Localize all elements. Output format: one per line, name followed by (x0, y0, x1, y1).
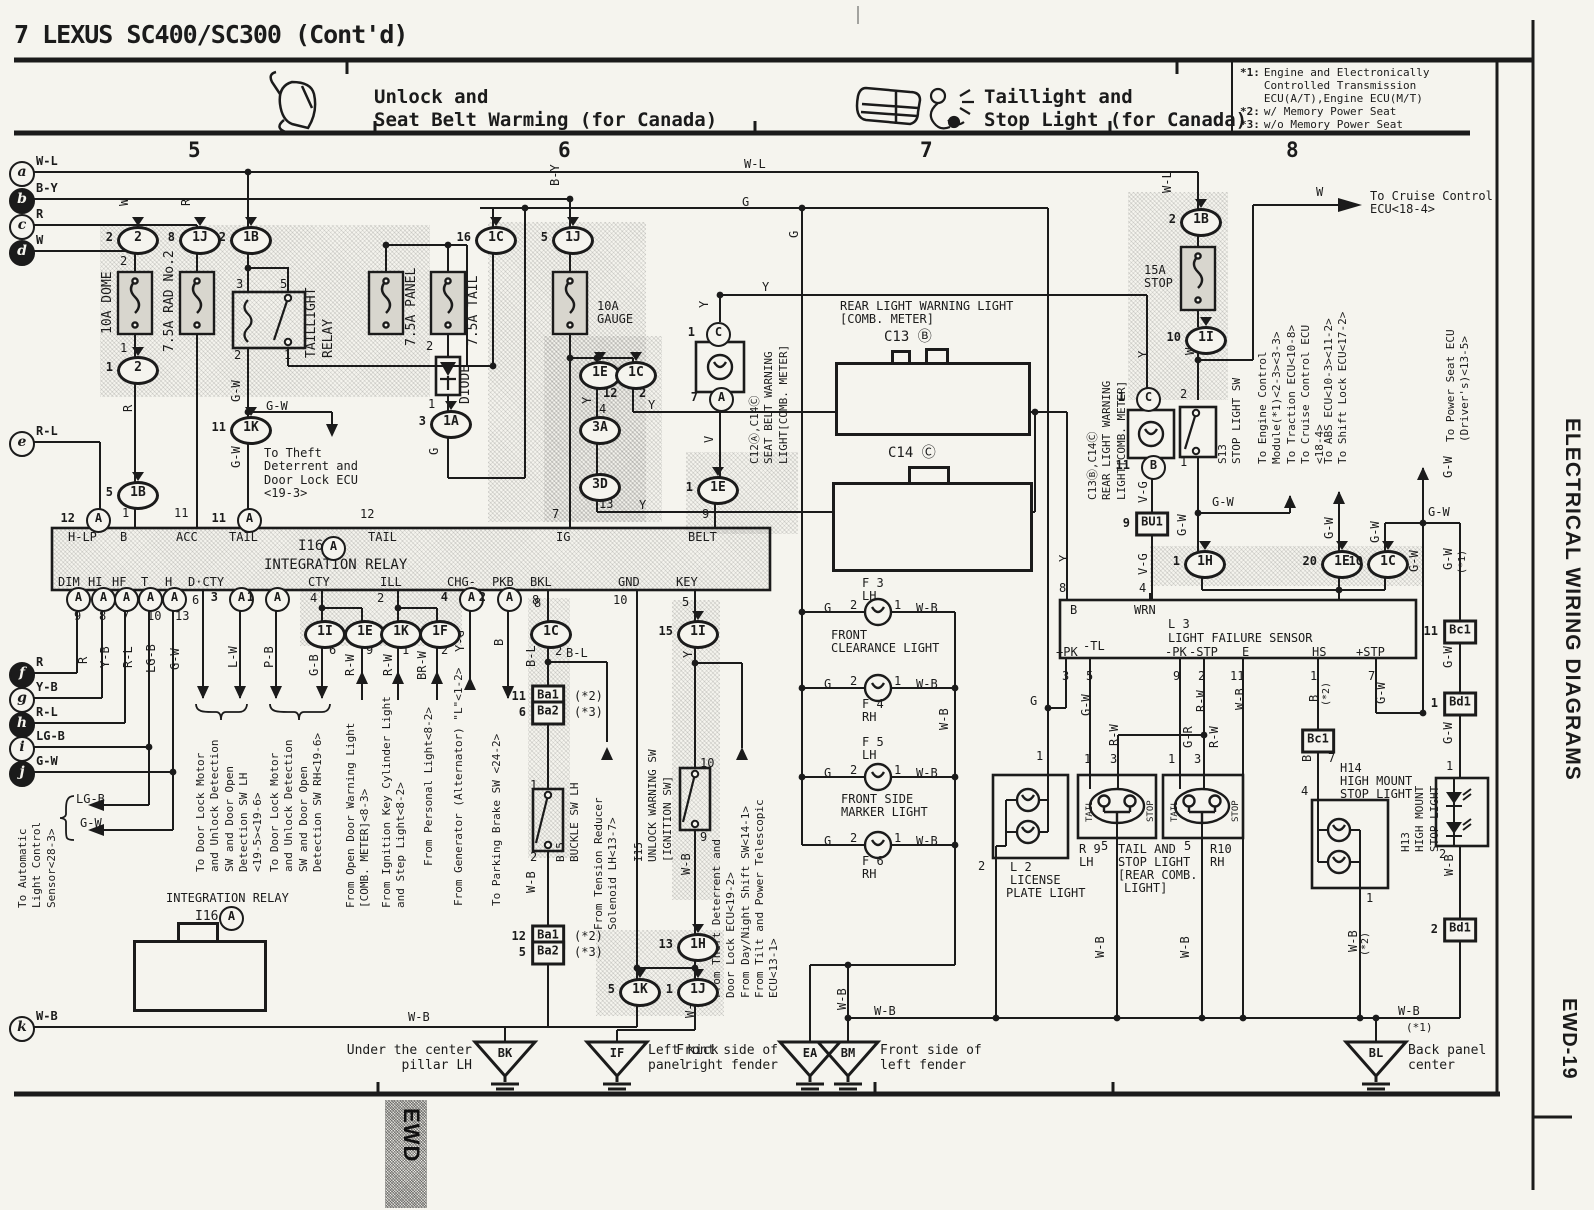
connector-pin: 12 (55, 511, 75, 525)
label-f5s: LH (862, 749, 876, 762)
label-tail_r10: TAIL (1170, 800, 1180, 822)
label-rn3a: 3 (1110, 753, 1117, 766)
label-gw_s: G-W (80, 817, 102, 830)
label-p1f4: 1 (894, 832, 901, 845)
connector-pin: 8 (155, 230, 175, 244)
label-r_c: R (180, 199, 193, 206)
vtext-v21: S13 STOP LIGHT SW (1216, 378, 1245, 464)
label-r9b: LH (1079, 856, 1093, 869)
connector-pin: 12 (603, 386, 617, 400)
label-wb2: W-B (916, 678, 938, 691)
label-y3d: Y (639, 499, 646, 512)
connector-1J: 1J (552, 226, 594, 255)
note-key: *3: (1240, 119, 1260, 132)
label-wyb: Y-B (99, 646, 112, 668)
row-wire-label-g: Y-B (36, 681, 58, 694)
connector-pin: 1 (1160, 554, 1180, 568)
connector-pin: 1 (234, 590, 254, 604)
vtext-v19: C12Ⓐ,C14Ⓒ SEAT BELT WARNING LIGHT[COMB. … (748, 345, 791, 464)
vtext-v6: TAILLIGHT RELAY (304, 288, 338, 358)
label-p12_tail: 12 (360, 508, 374, 521)
grid-column-7: 7 (920, 138, 933, 162)
ground-code-BK: BK (498, 1047, 512, 1060)
label-ig: IG (556, 531, 570, 544)
label-g4: G (824, 835, 831, 848)
grid-column-5: 5 (188, 138, 201, 162)
label-wbrw: BR-W (416, 651, 429, 680)
label-sb2: (*2) (1321, 682, 1332, 706)
connector-pin: 9 (1110, 516, 1130, 530)
label-g2: G (824, 678, 831, 691)
label-gw20: G-W (1323, 517, 1336, 539)
grid-column-6: 6 (558, 138, 571, 162)
label-gwm1n: (*1) (1457, 550, 1468, 574)
connector-circle-A: A (497, 587, 522, 612)
label-lgb_s: LG-B (76, 793, 105, 806)
connector-note: (*2) (574, 689, 603, 703)
label-v_sb: V (703, 436, 716, 443)
label-rn3b: 3 (1194, 753, 1201, 766)
connector-pin: 1 (673, 480, 693, 494)
label-wbr9: W-B (1094, 936, 1107, 958)
row-marker-a: a (9, 161, 35, 187)
label-sgw2: G-W (1375, 682, 1388, 704)
connector-circle-A: A (162, 587, 187, 612)
vtext-v10: From Ignition Key Cylinder Light and Ste… (380, 696, 409, 908)
connector-circle-A: A (265, 587, 290, 612)
label-wb1: W-B (916, 602, 938, 615)
connector-Bc1: Bc1 (1301, 729, 1335, 754)
label-stop_r10: STOP (1231, 800, 1241, 822)
label-n10: 10 (147, 610, 161, 623)
connector-2: 2 (117, 226, 159, 255)
connector-3D: 3D (579, 473, 621, 502)
connector-circle-A: A (237, 508, 262, 533)
label-wb14: W-B (1347, 930, 1360, 952)
label-wb4: W-B (916, 835, 938, 848)
connector-drawing-c14 (832, 482, 1033, 572)
label-p2f2: 2 (850, 675, 857, 688)
label-n10u: 10 (700, 757, 714, 770)
label-p7_ig: 7 (552, 508, 559, 521)
vtext-v16: From Tension Reducer Solenoid LH<13-7> (592, 798, 621, 930)
label-p9_belt: 9 (702, 508, 709, 521)
connector-1K: 1K (380, 620, 422, 649)
label-p1f2: 1 (894, 675, 901, 688)
connector-circle-A: A (219, 906, 244, 931)
row-wire-label-d: W (36, 234, 43, 247)
label-i16: I16 (298, 539, 323, 555)
connector-pin: 11 (506, 689, 526, 703)
label-n1bk: 1 (530, 779, 537, 792)
row-marker-j: j (9, 761, 35, 787)
label-n4a: 4 (599, 403, 606, 416)
label-belt: BELT (688, 531, 717, 544)
label-s13n2: 2 (1180, 388, 1187, 401)
right-section-title: Taillight andStop Light (for Canada) (984, 86, 1247, 132)
label-gws13: G-W (1176, 514, 1189, 536)
connector-pin: 12 (506, 929, 526, 943)
label-srw10: R-W (1208, 726, 1221, 748)
label-n2i: 2 (377, 592, 384, 605)
row-marker-g: g (9, 687, 35, 713)
label-l3a: L 3 (1168, 618, 1190, 631)
label-gwm3: G-W (1442, 722, 1455, 744)
label-w_d: W (118, 199, 131, 206)
label-p11_acc: 11 (174, 507, 188, 520)
label-cty: CTY (308, 576, 330, 589)
label-srw1: R-W (1195, 690, 1208, 712)
label-fc2: CLEARANCE LIGHT (831, 642, 939, 655)
label-vg1: V-G (1137, 481, 1150, 503)
connector-pin: 11 (206, 420, 226, 434)
horn-lamp-icon (931, 89, 974, 128)
vtext-v24: To Power Seat ECU (Driver's)<13-5> (1444, 329, 1473, 442)
label-bl2: B-L (566, 647, 588, 660)
label-f3s: LH (862, 590, 876, 603)
label-n7: 7 (122, 610, 129, 623)
connector-pin: 2 (93, 230, 113, 244)
label-g3: G (824, 767, 831, 780)
row-wire-label-e: R-L (36, 425, 58, 438)
label-g_bus: G (788, 231, 801, 238)
connector-1C: 1C (475, 226, 517, 255)
connector-circle-C: C (1136, 387, 1161, 412)
connector-note: (*2) (574, 929, 603, 943)
connector-circle-A: A (91, 587, 116, 612)
connector-drawing-c13 (835, 362, 1031, 436)
label-f6s: RH (862, 868, 876, 881)
footnotes: *1:Engine and Electronically Controlled … (1240, 67, 1429, 132)
right-title-line1: Taillight and (984, 86, 1133, 108)
connector-circle-A: A (321, 536, 346, 561)
label-ysb: Y (698, 301, 711, 308)
connector-1B: 1B (230, 226, 272, 255)
connector-pin: 5 (93, 485, 113, 499)
vtext-v23: To ABS ECU<10-3><11-2> To Shift Lock ECU… (1322, 312, 1351, 464)
label-bc1b: B (1301, 755, 1314, 762)
label-n4s: 4 (1139, 582, 1146, 595)
label-y3a: Y (581, 397, 594, 404)
label-r9n5: 5 (1101, 840, 1108, 853)
connector-pin: 7 (678, 390, 698, 404)
label-wlgb: LG-B (145, 644, 158, 673)
label-theft1: To Theft Deterrent and Door Lock ECU <19… (264, 447, 358, 501)
label-l2n1: 1 (1036, 750, 1043, 763)
label-p1_b: 1 (122, 507, 129, 520)
label-tail2: TAIL (368, 531, 397, 544)
label-ill: ILL (380, 576, 402, 589)
label-stop_r9: STOP (1146, 800, 1156, 822)
ground-code-BL: BL (1369, 1047, 1383, 1060)
connector-1J: 1J (677, 978, 719, 1007)
connector-pin: 13 (653, 937, 673, 951)
ground-location-EA: Front side of right fender (676, 1044, 778, 1073)
connector-1K: 1K (230, 416, 272, 445)
connector-pin: 5 (528, 230, 548, 244)
label-srw9: R-W (1108, 724, 1121, 746)
connector-pin: 2 (1156, 212, 1176, 226)
connector-pin: 4 (428, 590, 448, 604)
label-gnd: GND (618, 576, 640, 589)
label-sn11: 11 (1230, 670, 1244, 683)
connector-pin: 1 (1105, 390, 1125, 404)
label-key: KEY (676, 576, 698, 589)
vtext-v9: From Open Door Warning Light [COMB. METE… (344, 723, 373, 908)
connector-note: (*3) (574, 705, 603, 719)
label-vg2: V-G (1137, 553, 1150, 575)
label-cruise1: To Cruise Control ECU<18-4> (1370, 190, 1493, 217)
vtext-v14: To Automatic Light Control Sensor<28-3> (16, 822, 59, 908)
label-l2n2: 2 (978, 860, 985, 873)
row-wire-label-k: W-B (36, 1010, 58, 1023)
label-tail1: TAIL (229, 531, 258, 544)
label-gw1c: G-W (1408, 550, 1421, 572)
label-wbbln: (*1) (1406, 1022, 1433, 1034)
connector-circle-C: C (706, 322, 731, 347)
label-gwps: G-W (1442, 456, 1455, 478)
vtext-v3: 7.5A PANEL (404, 268, 421, 346)
sidebar-page-code: EWD-19 (1557, 998, 1580, 1080)
connector-pin: 20 (1297, 554, 1317, 568)
left-section-title: Unlock andSeat Belt Warming (for Canada) (374, 86, 717, 132)
label-stf2: STOP (1144, 277, 1173, 290)
note-text: w/o Memory Power Seat (1264, 119, 1403, 132)
connector-3A: 3A (579, 416, 621, 445)
vtext-v7: To Door Lock Motor and Unlock Detection … (194, 740, 265, 872)
connector-pin: 11 (1110, 458, 1130, 472)
label-y_belt: Y (762, 281, 769, 294)
connector-circle-A: A (86, 508, 111, 533)
label-n8s: 8 (1059, 582, 1066, 595)
row-marker-e: e (9, 431, 35, 457)
label-rn1a: 1 (1084, 753, 1091, 766)
connector-Bc1: Bc1 (1443, 620, 1477, 645)
label-bl1: B-L (525, 645, 538, 667)
taillight-icon (857, 88, 920, 124)
row-wire-label-i: LG-B (36, 730, 65, 743)
label-p2_tlr: 2 (234, 349, 241, 362)
connector-BU1: BU1 (1135, 512, 1169, 537)
label-rear2: [COMB. METER] (840, 313, 934, 326)
connector-circle-A: A (66, 587, 91, 612)
label-sens_b: B (1070, 604, 1077, 617)
label-g_1a: G (428, 448, 441, 455)
connector-circle-B: B (1141, 455, 1166, 480)
row-marker-k: k (9, 1016, 35, 1042)
seat-icon (271, 72, 315, 134)
label-n13: 13 (175, 610, 189, 623)
label-wb14n: (*2) (1360, 932, 1371, 956)
label-gwm2: G-W (1442, 646, 1455, 668)
ground-location-BK: Under the center pillar LH (347, 1044, 472, 1073)
connector-pin: 1 (93, 360, 113, 374)
label-p2f1: 2 (850, 599, 857, 612)
label-wrw1: R-W (344, 654, 357, 676)
row-wire-label-f: R (36, 656, 43, 669)
row-marker-i: i (9, 736, 35, 762)
row-marker-b: b (9, 188, 35, 214)
label-w_cruise: W (1316, 186, 1323, 199)
label-wbbus: W-B (938, 708, 951, 730)
connector-1C: 1C (530, 620, 572, 649)
note-key: *2: (1240, 106, 1260, 119)
label-n4c: 4 (310, 592, 317, 605)
connector-pin: 11 (1418, 624, 1438, 638)
row-wire-label-b: B-Y (36, 182, 58, 195)
label-wb_pkb: B (493, 639, 506, 646)
label-b_pin: B (120, 531, 127, 544)
label-gwm1: G-W (1442, 548, 1455, 570)
label-wbr10: W-B (1179, 936, 1192, 958)
note-key: *1: (1240, 67, 1260, 106)
label-wbh13: W-B (1443, 854, 1456, 876)
vtext-v2: 7.5A RAD No.2 (162, 250, 179, 352)
label-swb1: W-B (1234, 688, 1247, 710)
row-marker-d: d (9, 240, 35, 266)
label-c13t: C13 Ⓑ (884, 330, 932, 346)
label-p2f4: 2 (850, 832, 857, 845)
label-g_mid: G (742, 196, 749, 209)
vtext-v22: To Engine Control Module(*1)<2-3><3-3> T… (1256, 325, 1327, 464)
label-gwj: G-W (1428, 506, 1450, 519)
label-sstp2: +STP (1356, 646, 1385, 659)
label-wl_stop: W-L (1161, 171, 1174, 193)
label-y1c: Y (648, 399, 655, 412)
label-tas4: LIGHT] (1124, 882, 1167, 895)
label-rn1b: 1 (1168, 753, 1175, 766)
label-sb1: B (1308, 695, 1321, 702)
label-p1f3: 1 (894, 764, 901, 777)
label-n9u: 9 (700, 831, 707, 844)
connector-pin: 1 (675, 325, 695, 339)
label-n8: 8 (99, 610, 106, 623)
connector-1B: 1B (1180, 208, 1222, 237)
label-sn5: 5 (1086, 670, 1093, 683)
connector-Ba2: Ba2 (531, 701, 565, 726)
label-n9: 9 (74, 610, 81, 623)
connector-1B: 1B (117, 481, 159, 510)
row-wire-label-c: R (36, 208, 43, 221)
connector-pin: 15 (653, 624, 673, 638)
vtext-v5: DIODE (458, 365, 475, 404)
connector-pin: 11 (206, 511, 226, 525)
label-wrl: R-L (122, 646, 135, 668)
connector-drawing-i16 (133, 940, 267, 1012)
vtext-v1: 10A DOME (100, 271, 117, 334)
left-title-line1: Unlock and (374, 86, 488, 108)
vtext-v17: I15 UNLOCK WARNING SW [IGNITION SW] (632, 749, 675, 862)
connector-pin: 3 (198, 590, 218, 604)
label-h14n4: 4 (1301, 785, 1308, 798)
label-bc1n7: 7 (1328, 752, 1335, 765)
connector-circle-A: A (138, 587, 163, 612)
label-stl: -TL (1083, 640, 1105, 653)
label-wb3: W-B (916, 767, 938, 780)
label-tail_r9: TAIL (1085, 800, 1095, 822)
label-n5k: 5 (682, 596, 689, 609)
label-wl_mid: W-L (744, 158, 766, 171)
connector-1E: 1E (697, 476, 739, 505)
label-gw1: G-W (230, 380, 243, 402)
row-marker-f: f (9, 662, 35, 688)
label-p5_tlr: 5 (280, 278, 287, 291)
connector-pin: 2 (1418, 922, 1438, 936)
label-h14n1: 1 (1366, 892, 1373, 905)
label-l3b: LIGHT FAILURE SENSOR (1168, 632, 1313, 645)
label-wgw: G-W (169, 648, 182, 670)
label-p2_dome: 2 (120, 255, 127, 268)
label-spk2: -PK (1165, 646, 1187, 659)
label-gw2: G-W (266, 400, 288, 413)
row-wire-label-a: W-L (36, 155, 58, 168)
connector-1I: 1I (1185, 326, 1227, 355)
connector-circle-A: A (709, 387, 734, 412)
label-spk: +PK (1056, 646, 1078, 659)
row-wire-label-h: R-L (36, 706, 58, 719)
connector-Bd1: Bd1 (1443, 918, 1477, 943)
label-p1f1: 1 (894, 599, 901, 612)
connector-1F: 1F (419, 620, 461, 649)
label-shs: HS (1312, 646, 1326, 659)
connector-1H: 1H (1184, 550, 1226, 579)
label-wpb: P-B (263, 646, 276, 668)
label-wbh: W-B (874, 1005, 896, 1018)
row-wire-label-j: G-W (36, 755, 58, 768)
label-wbu: W-B (680, 853, 693, 875)
label-s13n1: 1 (1180, 456, 1187, 469)
connector-pin: 16 (451, 230, 471, 244)
connector-pin: 3 (406, 414, 426, 428)
connector-Ba2: Ba2 (531, 941, 565, 966)
label-p1_tlr: 1 (284, 349, 291, 362)
grid-column-8: 8 (1286, 138, 1299, 162)
connector-2: 2 (117, 356, 159, 385)
label-gws13b: G-W (1212, 496, 1234, 509)
note-text: w/ Memory Power Seat (1264, 106, 1396, 119)
label-hlp: H-LP (68, 531, 97, 544)
connector-1A: 1A (430, 410, 472, 439)
connector-1C: 1C (615, 361, 657, 390)
vtext-v25: H13 HIGH MOUNT STOP LIGHT (1399, 786, 1442, 852)
connector-1I: 1I (304, 620, 346, 649)
label-wbk: W-B (408, 1011, 430, 1024)
connector-1H: 1H (677, 933, 719, 962)
connector-note: (*3) (574, 945, 603, 959)
label-sgr: G-R (1182, 726, 1195, 748)
label-sstp: -STP (1189, 646, 1218, 659)
ewd-tab-label: EWD (398, 1108, 424, 1162)
connector-1C: 1C (1367, 550, 1409, 579)
label-sgw1: G-W (1080, 694, 1093, 716)
connector-pin: 5 (506, 945, 526, 959)
label-wgb: G-B (308, 654, 321, 676)
label-sens_wrn: WRN (1134, 604, 1156, 617)
vtext-v11: From Personal Light<8-2> (422, 707, 436, 866)
connector-pin: 1 (653, 982, 673, 996)
right-title-line2: Stop Light (for Canada) (984, 109, 1247, 131)
connector-pin: 2 (639, 386, 646, 400)
label-acc: ACC (176, 531, 198, 544)
connector-circle-A: A (114, 587, 139, 612)
ground-code-EA: EA (803, 1047, 817, 1060)
label-sn3: 3 (1062, 670, 1069, 683)
label-igr2: I16 (195, 910, 218, 925)
connector-pin: 10 (1343, 554, 1363, 568)
ground-code-BM: BM (841, 1047, 855, 1060)
label-p2f3: 2 (850, 764, 857, 777)
ewd-page: 7 LEXUS SC400/SC300 (Cont'd) Unlock andS… (0, 0, 1594, 1210)
